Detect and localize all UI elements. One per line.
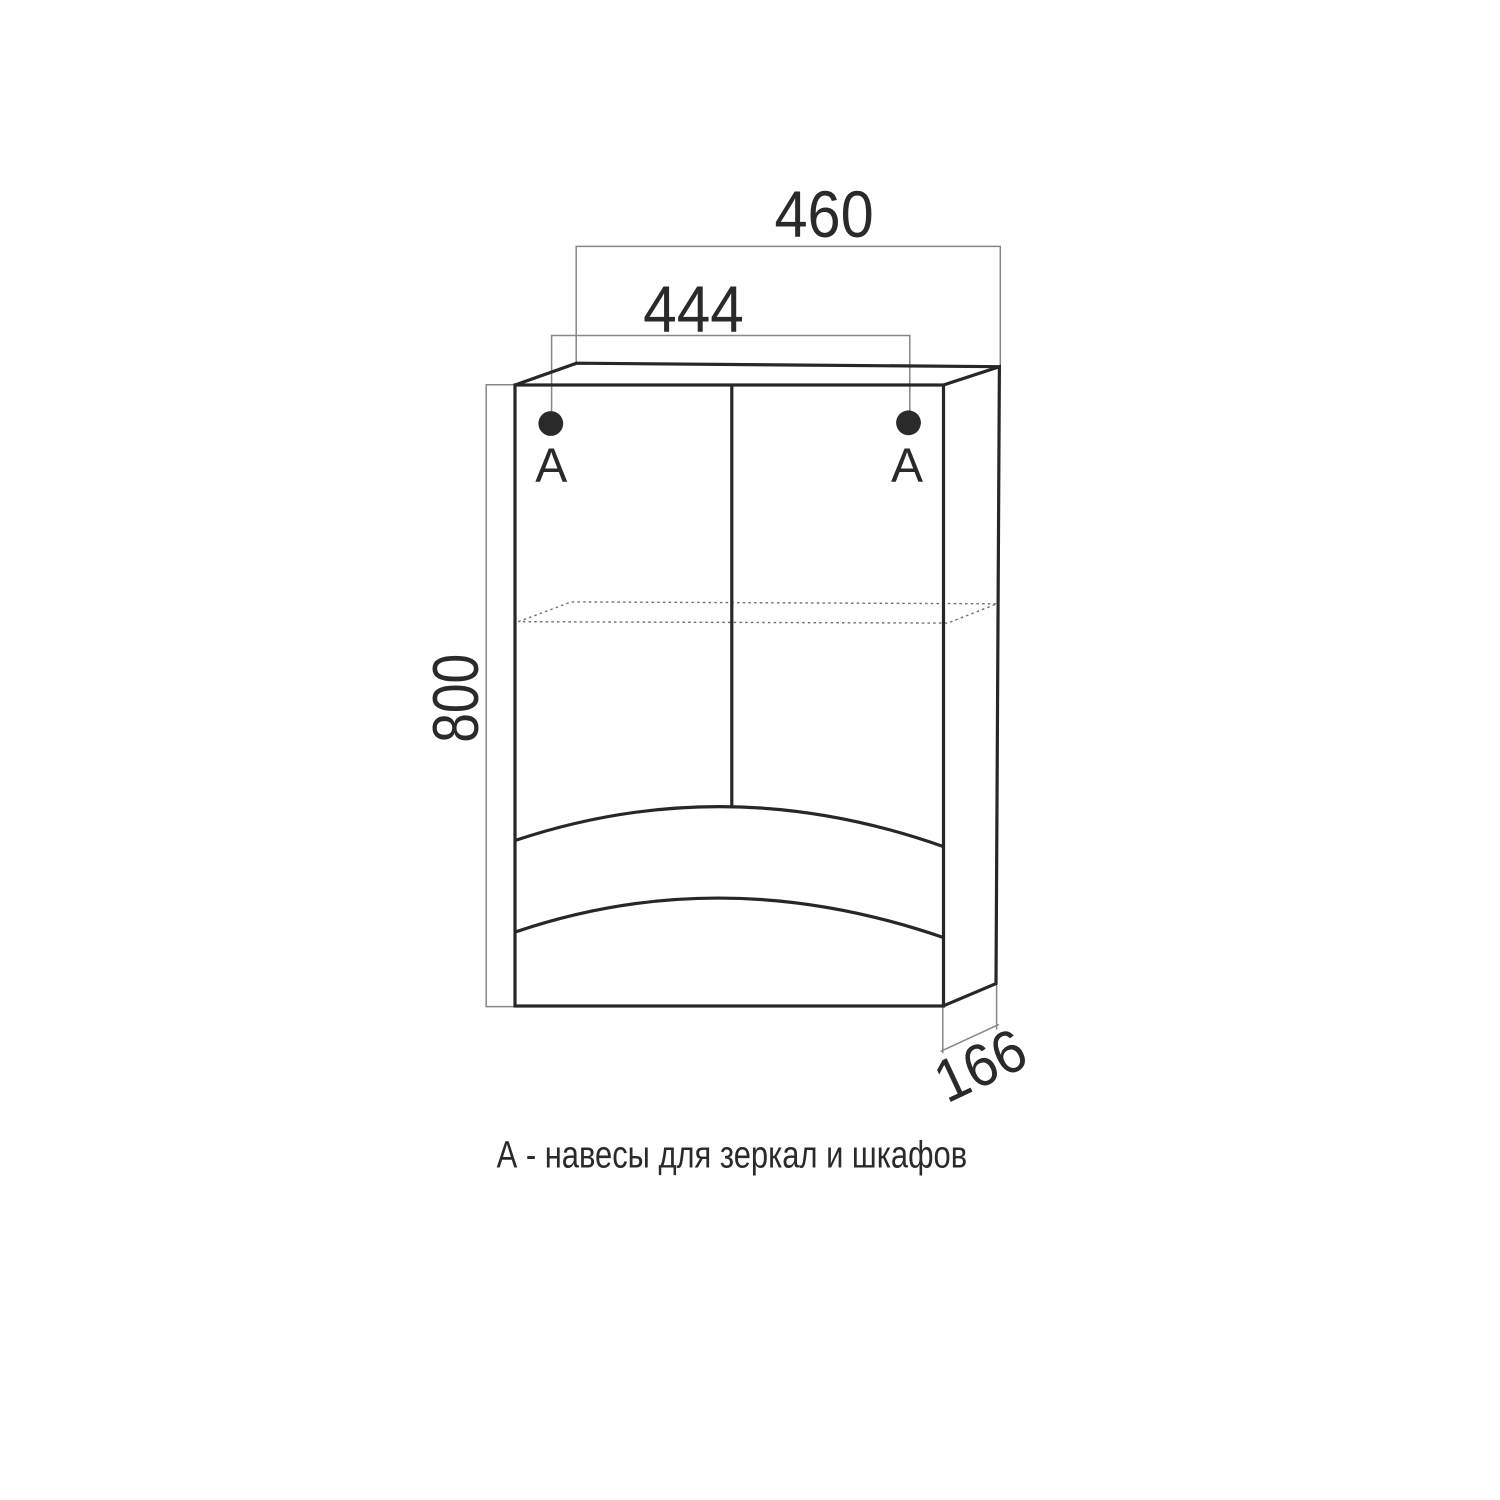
svg-text:444: 444 <box>643 272 744 346</box>
svg-text:460: 460 <box>774 177 873 251</box>
svg-text:A: A <box>891 440 923 493</box>
svg-text:А - навесы для зеркал и шкафов: А - навесы для зеркал и шкафов <box>497 1135 968 1177</box>
svg-text:A: A <box>535 440 567 493</box>
svg-text:800: 800 <box>419 654 492 743</box>
